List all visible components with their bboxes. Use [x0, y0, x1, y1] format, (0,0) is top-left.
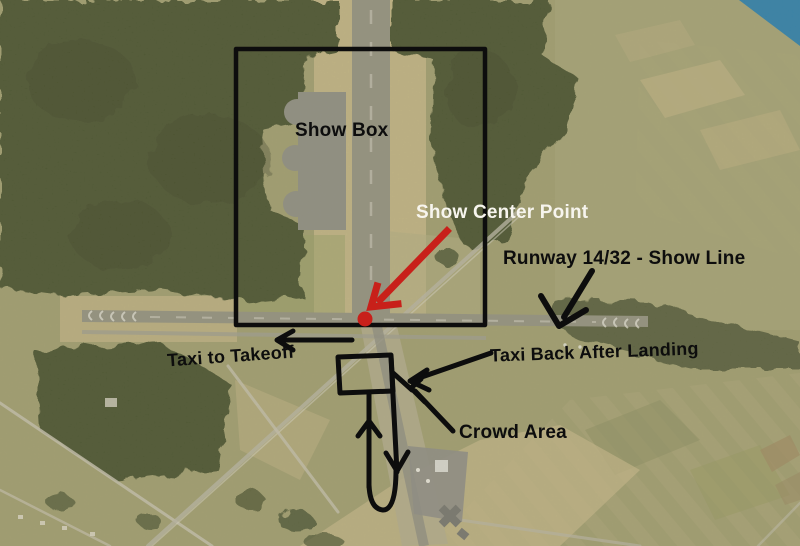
show-center-dot-icon — [358, 312, 373, 327]
airshow-map: Show Box Show Center Point Runway 14/32 … — [0, 0, 800, 546]
runway-show-line-arrow — [541, 271, 592, 326]
show-center-arrow — [371, 231, 447, 307]
crowd-area-label: Crowd Area — [459, 423, 567, 442]
crowd-loop-drawing — [338, 355, 412, 510]
runway-show-line-label: Runway 14/32 - Show Line — [503, 249, 745, 268]
show-box-label: Show Box — [295, 121, 388, 140]
taxi-back-arrow — [410, 353, 491, 390]
show-box-outline — [236, 49, 485, 325]
show-center-point-label: Show Center Point — [416, 203, 588, 222]
annotation-overlay — [0, 0, 800, 546]
